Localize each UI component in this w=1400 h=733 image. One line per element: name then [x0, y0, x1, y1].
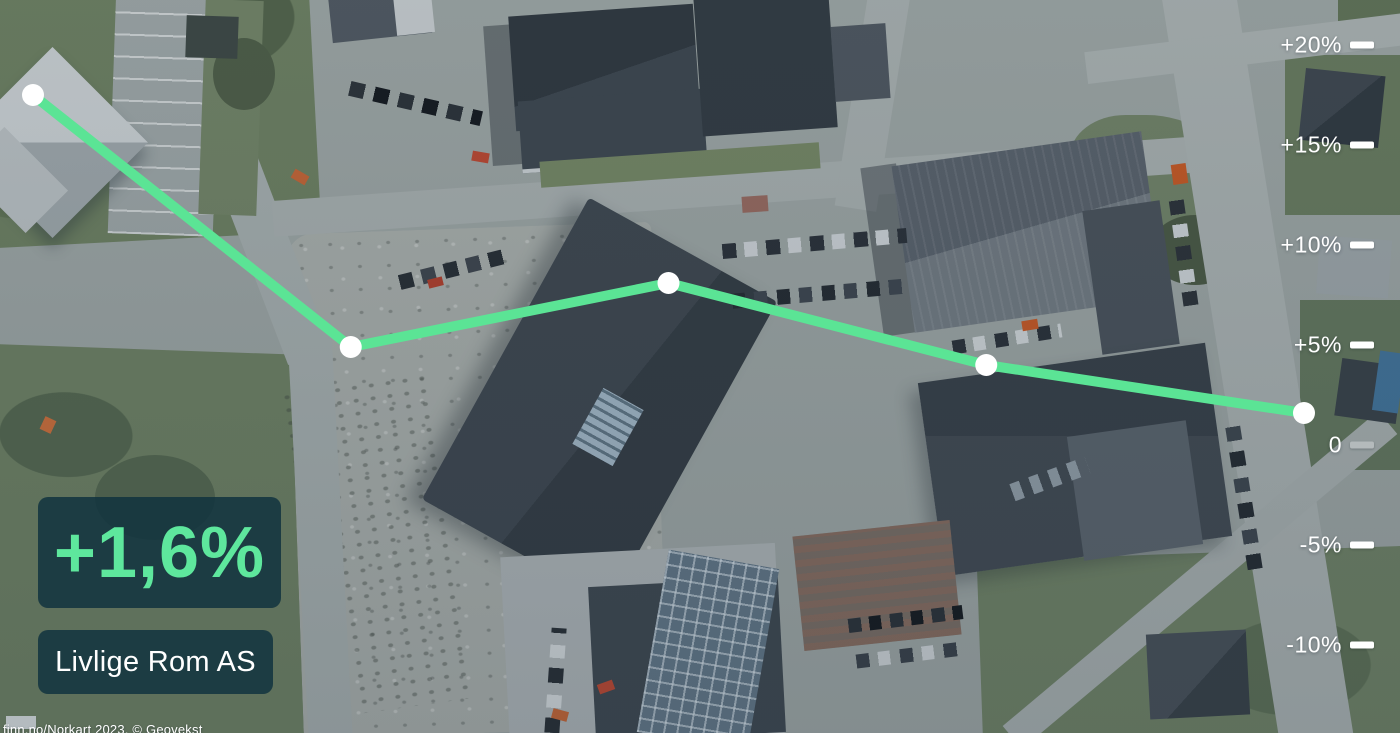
house-roof: [1298, 68, 1385, 148]
car-red: [471, 151, 489, 164]
car-row: [952, 323, 1063, 354]
company-name-label: Livlige Rom AS: [55, 646, 256, 679]
screenshot-root: +20%+15%+10%+5%0-5%-10% +1,6% Livlige Ro…: [0, 0, 1400, 733]
building-roof: [185, 15, 238, 59]
school-roof: [693, 0, 837, 137]
price-change-badge: +1,6%: [38, 497, 281, 608]
car-row: [348, 81, 483, 126]
house-roof: [1146, 629, 1250, 719]
brick-building: [792, 520, 961, 651]
building-roof: [1067, 420, 1203, 560]
crosswalk-patch: [741, 195, 768, 213]
school-roof: [830, 23, 890, 102]
building-roof: [393, 0, 435, 36]
car-orange: [1171, 163, 1189, 185]
company-badge: Livlige Rom AS: [38, 630, 273, 694]
house-roof: [1316, 236, 1392, 299]
car-row: [856, 641, 965, 668]
map-attribution: finn.no/Norkart 2023, © Geovekst: [3, 722, 203, 733]
price-change-value: +1,6%: [54, 512, 265, 594]
aerial-map[interactable]: [0, 0, 1400, 733]
